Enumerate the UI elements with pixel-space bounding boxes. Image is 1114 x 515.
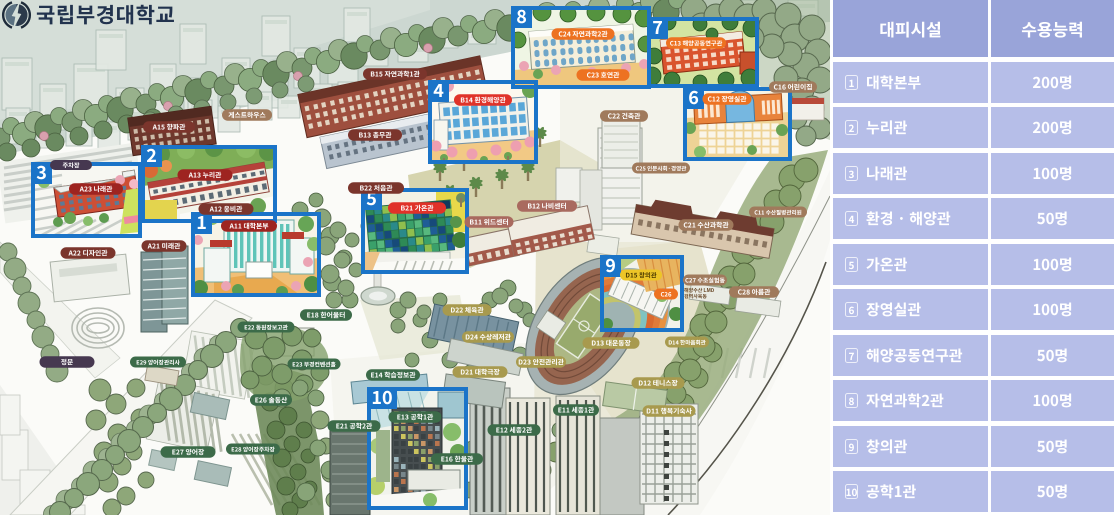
svg-text:A23 나래관: A23 나래관 <box>79 183 113 193</box>
svg-text:D12 테니스장: D12 테니스장 <box>638 377 678 387</box>
svg-text:C13 해양공동연구관: C13 해양공동연구관 <box>670 38 723 47</box>
svg-text:B14 환경해양관: B14 환경해양관 <box>460 94 506 104</box>
svg-text:E29 양어장관리사: E29 양어장관리사 <box>136 357 180 366</box>
svg-text:6: 6 <box>688 84 699 110</box>
svg-text:4: 4 <box>433 77 444 103</box>
svg-text:D14 한마음회관: D14 한마음회관 <box>668 338 706 346</box>
svg-text:D24 수상레저관: D24 수상레저관 <box>465 331 511 341</box>
svg-text:10: 10 <box>371 384 392 410</box>
svg-text:D21 대학극장: D21 대학극장 <box>460 366 500 376</box>
svg-text:E13 공학1관: E13 공학1관 <box>397 411 434 421</box>
svg-text:E28 양어장주차장: E28 양어장주차장 <box>231 444 275 453</box>
svg-text:A22 디자인관: A22 디자인관 <box>68 247 109 257</box>
svg-text:A13 누리관: A13 누리관 <box>188 169 222 179</box>
svg-text:3: 3 <box>36 159 47 185</box>
svg-text:C24 자연과학2관: C24 자연과학2관 <box>558 28 608 38</box>
svg-text:D15 창의관: D15 창의관 <box>625 270 656 279</box>
svg-text:D22 체육관: D22 체육관 <box>450 304 484 314</box>
svg-text:C11 수산질병관리원: C11 수산질병관리원 <box>754 208 802 216</box>
svg-text:C27 수조실험동: C27 수조실험동 <box>685 275 725 284</box>
svg-text:D11 행복기숙사: D11 행복기숙사 <box>646 405 692 415</box>
svg-text:C16 어린이집: C16 어린이집 <box>773 81 812 91</box>
svg-text:B11 위드센터: B11 위드센터 <box>469 216 508 226</box>
svg-text:A21 미래관: A21 미래관 <box>147 240 181 250</box>
svg-text:C23 호연관: C23 호연관 <box>587 69 621 79</box>
svg-text:A12 웅비관: A12 웅비관 <box>209 203 243 213</box>
svg-text:D13 대운동장: D13 대운동장 <box>591 337 631 347</box>
svg-text:B21 가온관: B21 가온관 <box>401 202 435 212</box>
svg-text:A15 향파관: A15 향파관 <box>152 121 186 131</box>
svg-text:E22 동원장보고관: E22 동원장보고관 <box>244 322 288 331</box>
svg-text:A11 대학본부: A11 대학본부 <box>229 220 269 230</box>
svg-text:D23 안전관리관: D23 안전관리관 <box>518 356 564 366</box>
svg-text:E12 세종2관: E12 세종2관 <box>496 424 533 434</box>
svg-text:정문: 정문 <box>61 356 74 366</box>
svg-text:C21 수산과학관: C21 수산과학관 <box>683 219 729 229</box>
svg-text:8: 8 <box>516 3 527 29</box>
svg-text:E18 한어울터: E18 한어울터 <box>307 309 346 319</box>
svg-text:E23 부경컨벤션홀: E23 부경컨벤션홀 <box>292 359 336 368</box>
svg-text:E21 공학2관: E21 공학2관 <box>336 420 373 430</box>
svg-text:검역사육동: 검역사육동 <box>684 293 707 300</box>
svg-text:C22 건축관: C22 건축관 <box>608 110 642 120</box>
svg-text:7: 7 <box>652 14 663 40</box>
svg-text:E26 솔동산: E26 솔동산 <box>255 394 288 404</box>
svg-text:B15 자연과학1관: B15 자연과학1관 <box>370 68 420 78</box>
svg-text:E11 세종1관: E11 세종1관 <box>558 404 595 414</box>
svg-text:C26: C26 <box>660 289 671 298</box>
svg-text:E16 한울관: E16 한울관 <box>441 453 474 463</box>
svg-text:E14 학습정보관: E14 학습정보관 <box>370 369 416 379</box>
svg-text:국립부경대학교: 국립부경대학교 <box>36 0 175 30</box>
svg-text:2: 2 <box>146 142 157 168</box>
svg-text:E27 양어장: E27 양어장 <box>172 446 205 456</box>
svg-text:9: 9 <box>605 252 616 278</box>
svg-text:B13 총무관: B13 총무관 <box>359 129 393 139</box>
svg-text:C12 장영실관: C12 장영실관 <box>707 93 747 103</box>
svg-text:B12 나비센터: B12 나비센터 <box>527 200 566 210</box>
svg-text:주차장: 주차장 <box>62 160 79 169</box>
svg-text:B22 처음관: B22 처음관 <box>360 182 394 192</box>
svg-text:C25 인문사회·경영관: C25 인문사회·경영관 <box>636 164 687 172</box>
svg-text:C28 아름관: C28 아름관 <box>738 286 772 296</box>
svg-text:게스트하우스: 게스트하우스 <box>228 109 266 119</box>
